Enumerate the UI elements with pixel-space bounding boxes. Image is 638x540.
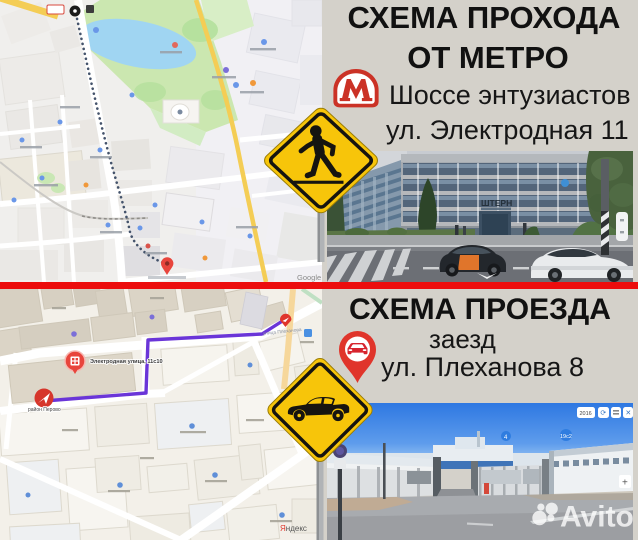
svg-text:+: + bbox=[622, 478, 628, 489]
svg-text:✕: ✕ bbox=[625, 410, 631, 417]
svg-text:⟳: ⟳ bbox=[600, 410, 606, 417]
svg-text:19с2: 19с2 bbox=[560, 434, 572, 440]
svg-text:Google: Google bbox=[297, 273, 321, 282]
svg-text:Электродная улица, 11с10: Электродная улица, 11с10 bbox=[90, 359, 163, 365]
svg-text:2016: 2016 bbox=[580, 411, 592, 417]
svg-text:район Перово: район Перово bbox=[28, 406, 61, 413]
svg-text:Avito: Avito bbox=[560, 501, 634, 531]
svg-text:ШТЕРН: ШТЕРН bbox=[481, 198, 512, 208]
